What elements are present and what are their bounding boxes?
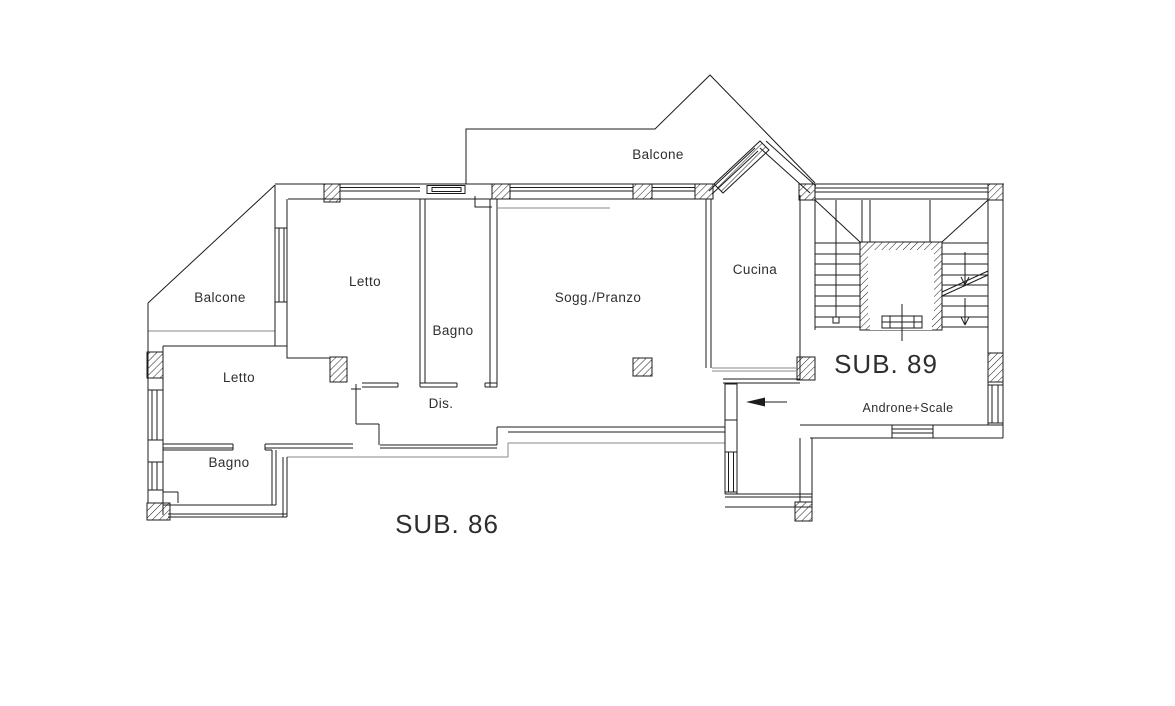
label-bagno-top: Bagno	[432, 323, 473, 338]
lower-left-rooms	[147, 303, 353, 520]
dis-north-wall	[351, 383, 497, 445]
label-sub89: SUB. 89	[834, 349, 938, 379]
label-sub86: SUB. 86	[395, 509, 499, 539]
label-letto-lower: Letto	[223, 370, 255, 385]
east-wall	[988, 184, 1003, 438]
floor-plan-canvas: Balcone Balcone Letto Bagno Sogg./Pranzo…	[0, 0, 1175, 706]
letto-top-west-wall	[275, 185, 287, 346]
label-balcone-top: Balcone	[632, 147, 684, 162]
balcony-left-outline	[148, 185, 275, 331]
label-androne-scale: Androne+Scale	[862, 401, 953, 415]
label-cucina: Cucina	[733, 262, 778, 277]
entry-walls	[723, 379, 812, 521]
balcony-top-outline	[466, 75, 815, 184]
floor-plan: Balcone Balcone Letto Bagno Sogg./Pranzo…	[0, 0, 1175, 706]
label-sogg-pranzo: Sogg./Pranzo	[555, 290, 642, 305]
entry-direction-arrow	[746, 398, 787, 407]
stairwell	[799, 184, 1004, 341]
label-dis: Dis.	[429, 396, 454, 411]
label-letto-top: Letto	[349, 274, 381, 289]
south-corridor-wall	[287, 427, 725, 457]
androne-south-wall	[800, 425, 1003, 438]
labels-layer: Balcone Balcone Letto Bagno Sogg./Pranzo…	[194, 147, 953, 539]
cucina-walls	[706, 141, 816, 380]
label-balcone-left: Balcone	[194, 290, 246, 305]
north-wall	[275, 184, 713, 202]
label-bagno-lower: Bagno	[208, 455, 249, 470]
